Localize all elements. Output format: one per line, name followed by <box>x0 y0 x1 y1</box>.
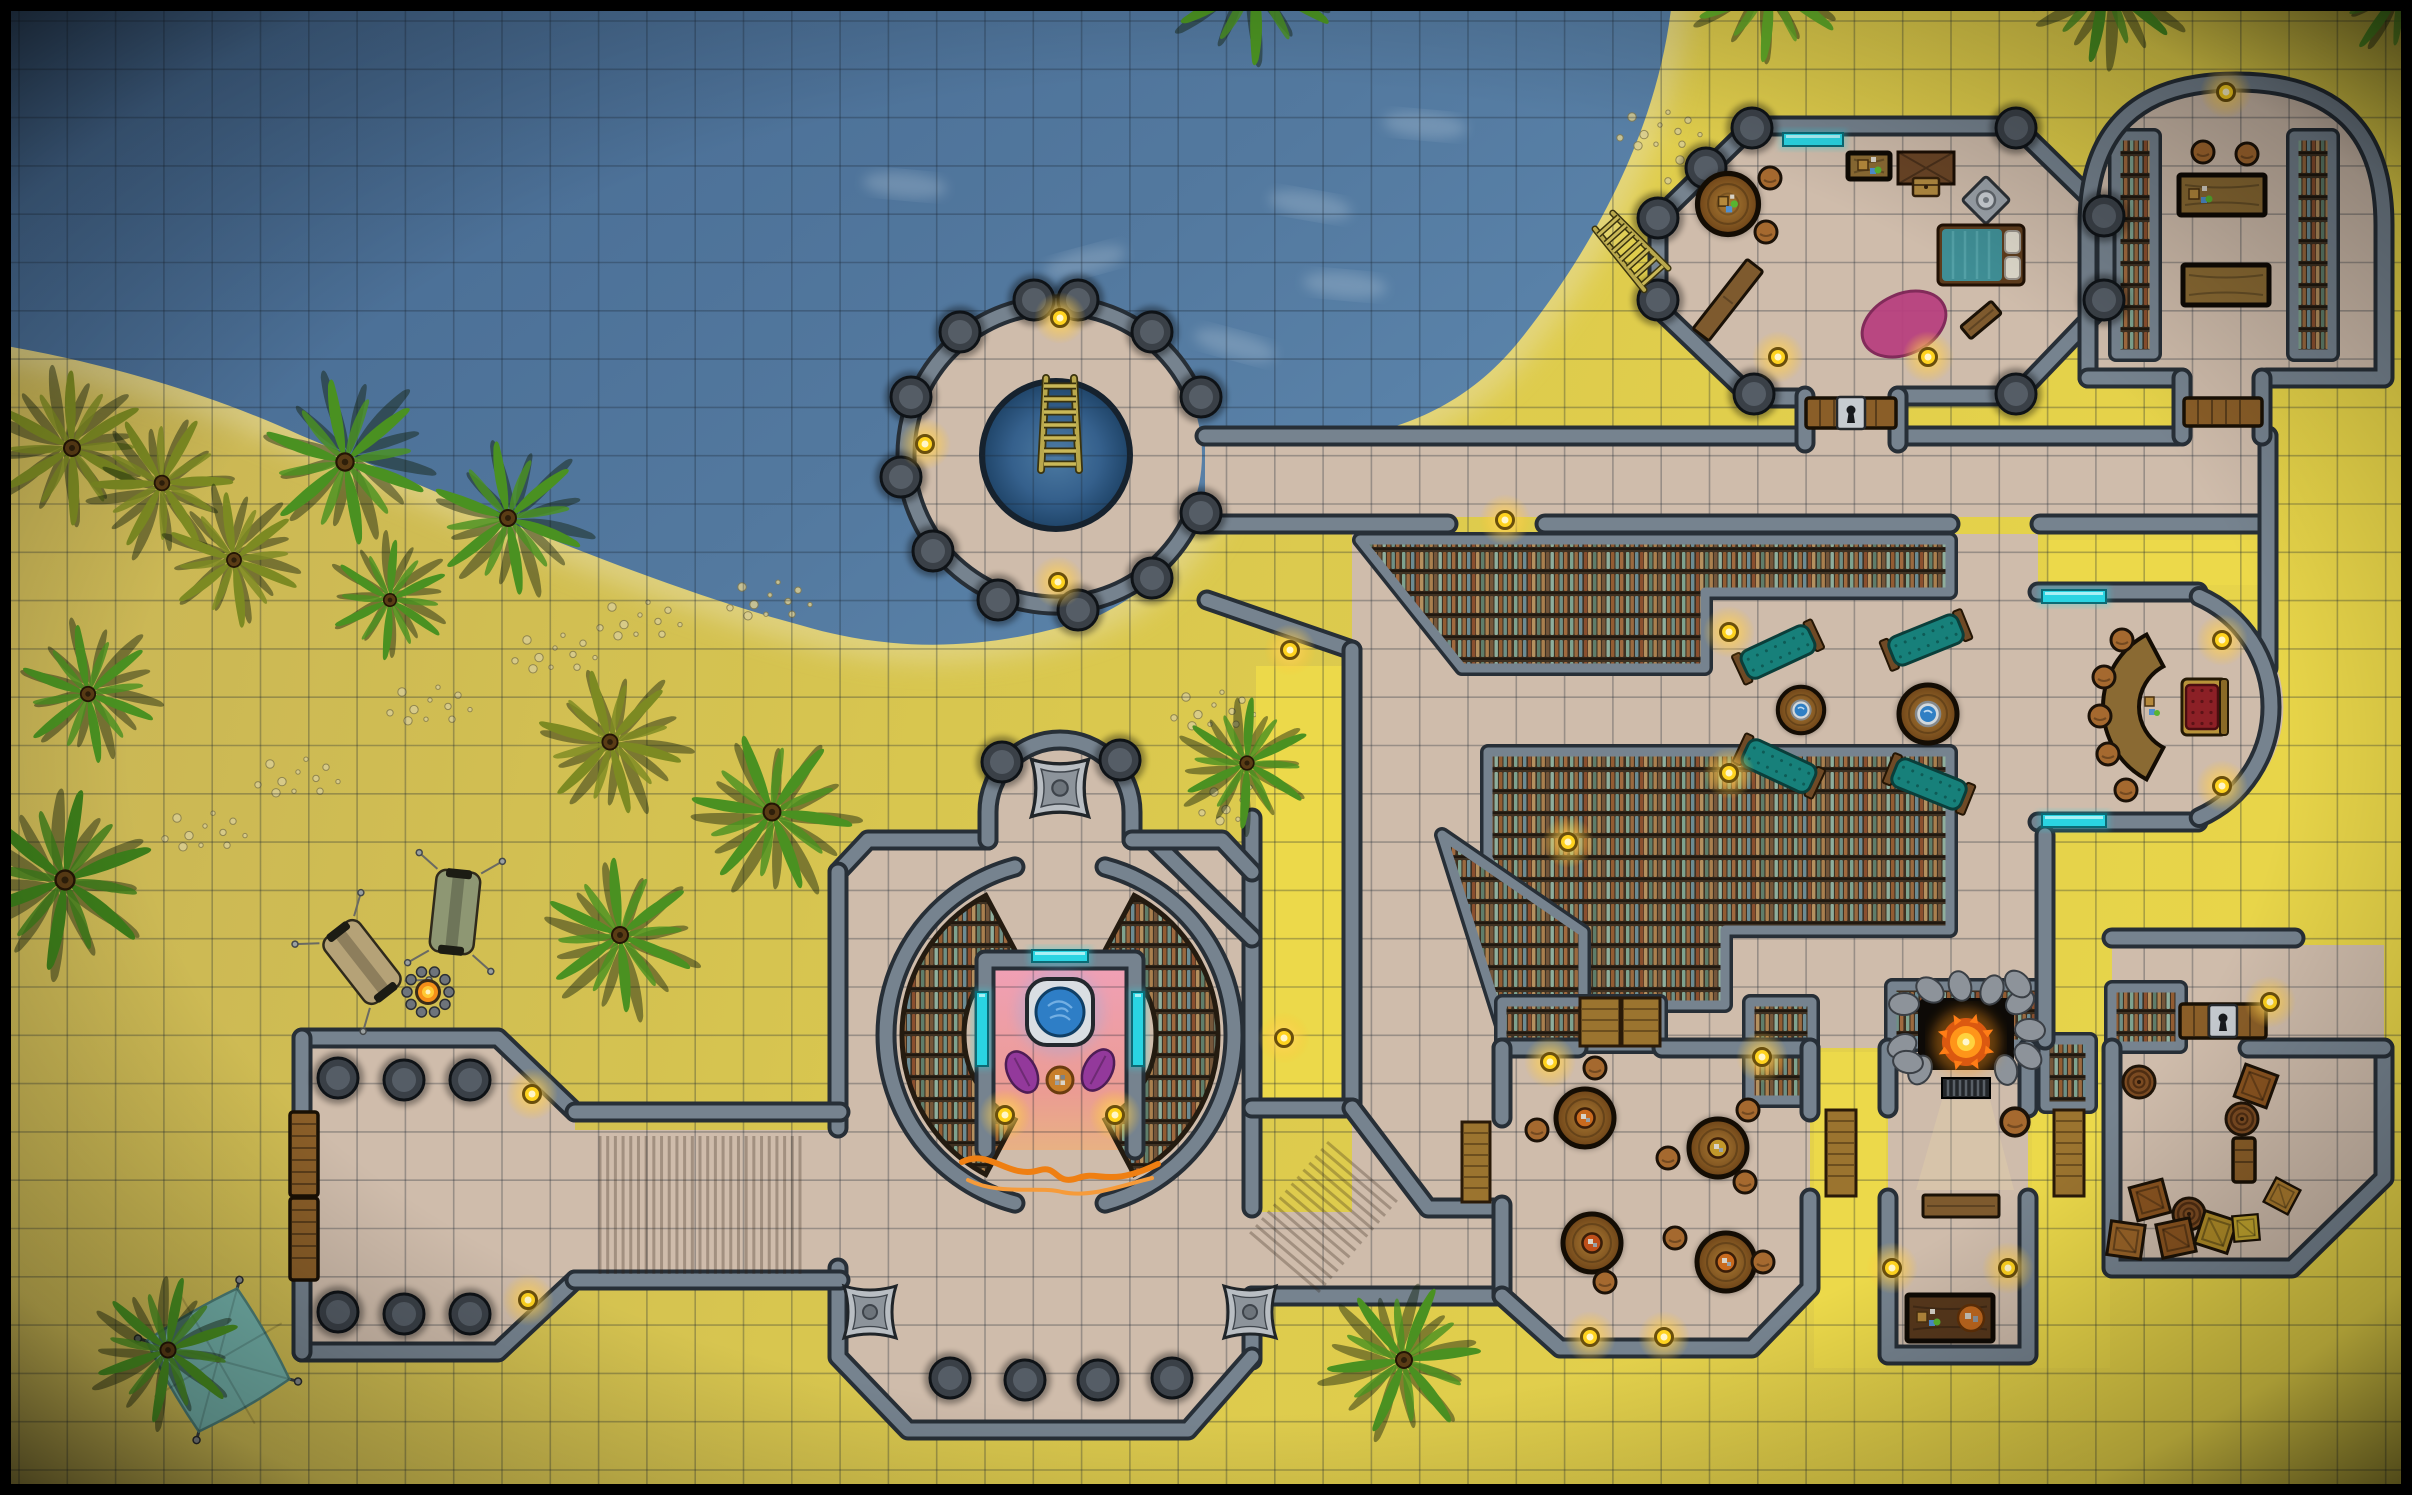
vignette <box>0 0 2412 1495</box>
vignette <box>0 0 2412 1495</box>
map-canvas <box>0 0 2412 1495</box>
battle-map-stage: Top-down fantasy battle map: seaside lib… <box>0 0 2412 1495</box>
